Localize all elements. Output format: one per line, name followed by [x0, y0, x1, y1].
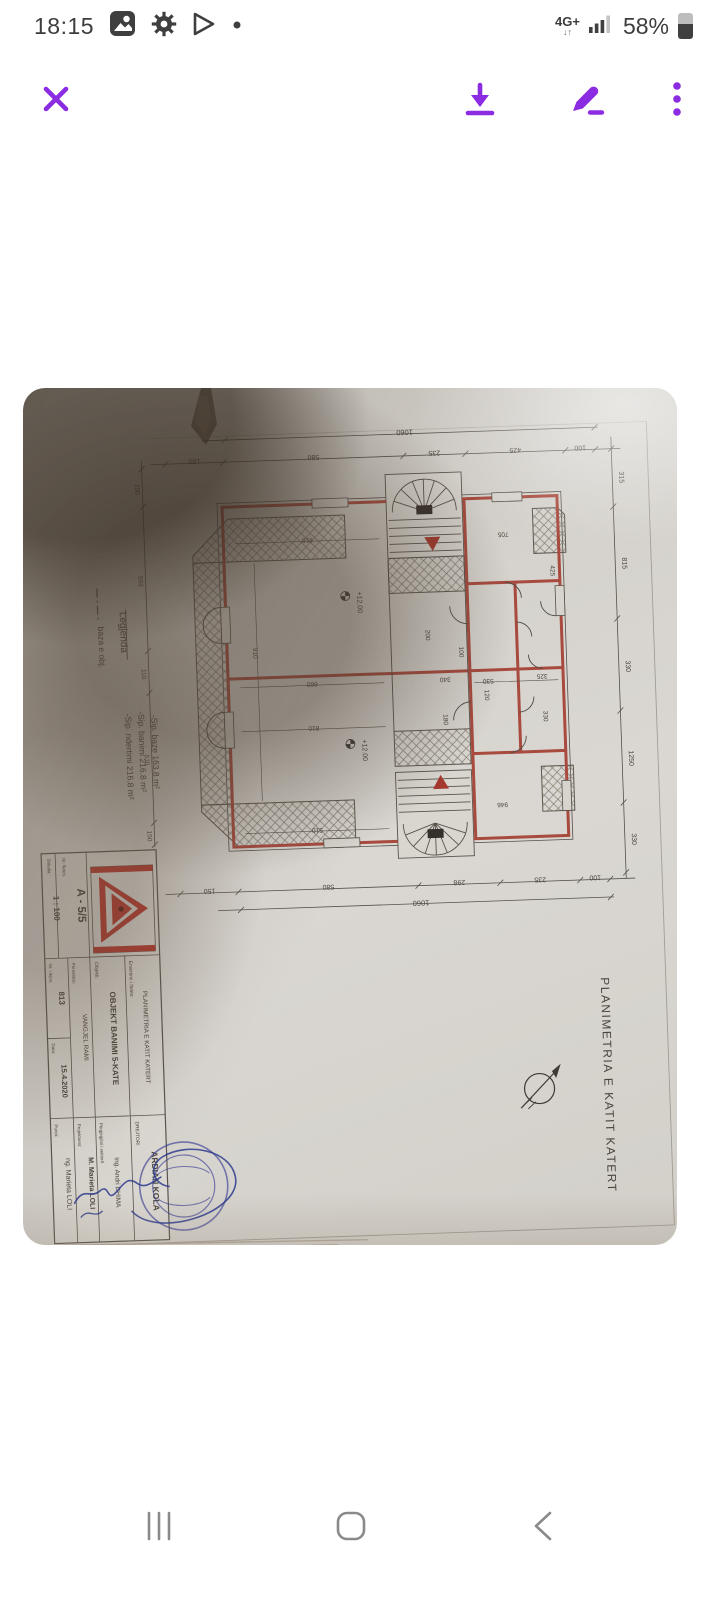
dim-label: 200	[423, 630, 430, 641]
navigation-bar	[0, 1490, 717, 1562]
dim-label: 100	[574, 444, 586, 451]
field-label: Shkalla:	[46, 858, 52, 874]
viewer-toolbar	[0, 64, 717, 134]
dim-label: 580	[322, 883, 334, 890]
legend-area: -Sip. baze 163.8 m²	[149, 715, 162, 790]
back-button[interactable]	[523, 1503, 561, 1549]
plan-title: PLANIMETRIA E KATIT KATERT	[598, 977, 620, 1193]
dim-label: 610	[301, 536, 312, 543]
dim-label: 180	[441, 714, 448, 725]
field-label: Nr. fletës:	[61, 858, 67, 877]
photo-viewer-image[interactable]: 1060 150 580 235 425 100 1060 150 580 29…	[23, 388, 677, 1245]
dim-label: 530	[482, 677, 493, 684]
legend-area: -Sip. ndertimi 216.8 m²	[123, 714, 136, 800]
signal-strength-icon	[589, 14, 612, 38]
dim-label: 810	[308, 724, 319, 731]
settings-notification-icon	[151, 11, 177, 42]
field-label: Objekti:	[93, 962, 100, 979]
dim-label: 1250	[627, 750, 635, 766]
home-button[interactable]	[328, 1503, 374, 1549]
dim-label: 315	[617, 471, 624, 483]
dim-label: 235	[428, 449, 440, 456]
status-bar: 18:15	[0, 0, 717, 48]
floor-plan: 610 910 660 810 510 340 530 200 705 425 …	[190, 468, 576, 865]
more-options-button[interactable]	[667, 76, 687, 122]
close-button[interactable]	[34, 77, 78, 121]
dim-label: 235	[534, 875, 546, 882]
level-value: +12.00	[360, 739, 368, 761]
phone-screen: 18:15	[0, 0, 717, 1600]
dim-label: 1060	[413, 898, 430, 908]
field-label: Nr. i lejes:	[48, 963, 54, 983]
notification-dot-icon	[232, 17, 242, 35]
legend-area: -Sip. banimi 216.8 m²	[136, 711, 149, 792]
status-right: 4G+ ↓↑ 58%	[555, 13, 693, 40]
dim-label: 150	[133, 484, 140, 495]
battery-icon	[678, 13, 693, 39]
field-label: DREJTORI	[133, 1122, 140, 1146]
field-label: Punoi:	[54, 1124, 59, 1137]
edit-button[interactable]	[561, 74, 611, 124]
dim-label: 330	[630, 833, 637, 845]
recents-button[interactable]	[140, 1504, 178, 1548]
dim-label: 100	[457, 646, 464, 657]
title-block: Shkalla: 1 : 100 Nr. fletës: A - 5/5 Obj…	[41, 847, 238, 1243]
permit-number: 813	[57, 991, 66, 1005]
dim-label: 425	[509, 446, 521, 453]
clock: 18:15	[34, 13, 94, 40]
gallery-notification-icon	[109, 10, 136, 42]
dim-label: 580	[307, 453, 319, 460]
legend-line-sample	[97, 589, 98, 621]
sheet-number: A - 5/5	[74, 888, 87, 923]
dim-label: 325	[536, 672, 547, 679]
dim-label: 100	[589, 873, 601, 880]
toolbar-actions	[455, 74, 687, 124]
date-value: 15.4.2020	[59, 1064, 69, 1098]
scale-value: 1 : 100	[52, 896, 62, 922]
dim-label: 660	[306, 680, 317, 687]
battery-percent: 58%	[623, 13, 669, 40]
dim-label: 150	[203, 887, 215, 894]
dim-label: 910	[251, 648, 258, 659]
field-label: Projektuesi:	[77, 1124, 83, 1148]
stairs-top	[385, 472, 464, 559]
download-button[interactable]	[455, 74, 505, 124]
dim-label: 150	[188, 457, 200, 464]
dim-label: 150	[145, 830, 152, 841]
dim-label: 425	[548, 565, 555, 576]
field-label: Data:	[51, 1043, 56, 1054]
dim-label: 330	[541, 711, 548, 722]
play-store-notification-icon	[192, 11, 217, 42]
stairs-bottom	[395, 770, 474, 859]
dim-label: 298	[453, 878, 465, 885]
north-arrow-icon	[520, 1064, 563, 1109]
dim-label: 330	[624, 660, 631, 672]
dim-label: 593	[136, 576, 143, 587]
data-arrows-icon: ↓↑	[563, 28, 572, 37]
network-indicator: 4G+ ↓↑	[555, 15, 580, 37]
level-value: +12.00	[355, 591, 363, 613]
legend: Legjenda baza e obj. -Sip. ndertimi 216.…	[95, 587, 162, 801]
dim-label: 110	[140, 669, 147, 680]
dim-label: 120	[483, 690, 490, 701]
dim-label: 510	[311, 826, 322, 833]
status-left: 18:15	[34, 10, 242, 42]
dim-label: 705	[497, 530, 508, 537]
dim-label: 946	[497, 800, 508, 807]
dim-label: 1060	[396, 428, 413, 438]
drawing-sheet: 1060 150 580 235 425 100 1060 150 580 29…	[24, 419, 675, 1245]
field-label: Porositësi:	[71, 963, 77, 984]
dim-label: 340	[439, 675, 450, 682]
legend-line-label: baza e obj.	[96, 626, 107, 668]
dim-label: 815	[620, 557, 627, 569]
